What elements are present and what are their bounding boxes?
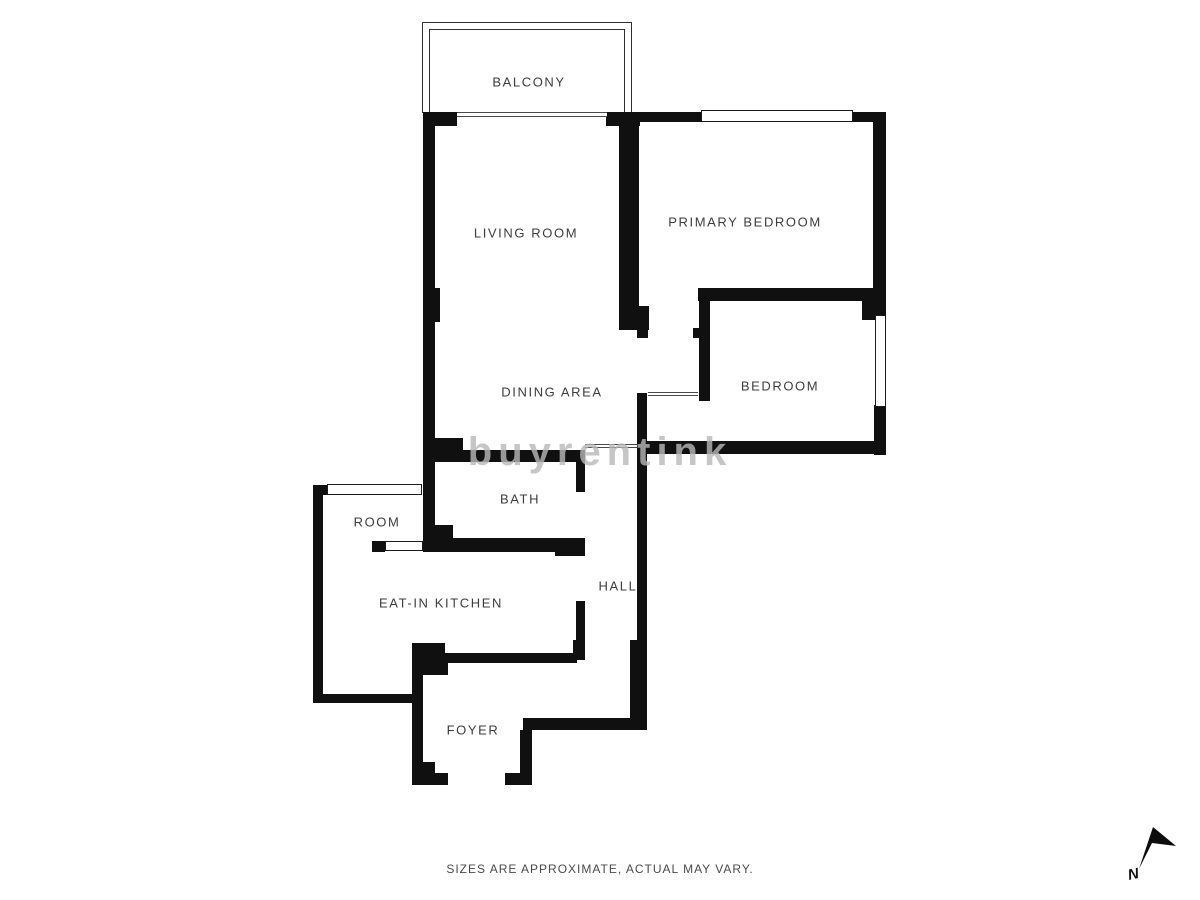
- wall-segment: [699, 288, 710, 401]
- wall-segment: [423, 288, 440, 322]
- wall-segment: [630, 640, 647, 730]
- wall-segment: [693, 328, 700, 338]
- wall-segment: [619, 112, 639, 306]
- window: [701, 110, 853, 122]
- room-label-room: ROOM: [354, 515, 401, 530]
- wall-segment: [372, 541, 385, 552]
- wall-segment: [873, 112, 886, 304]
- wall-segment: [313, 694, 419, 703]
- room-label-hall: HALL: [599, 579, 638, 594]
- watermark: buyrentink: [468, 430, 732, 475]
- wall-segment: [698, 288, 886, 301]
- wall-segment: [412, 773, 448, 785]
- wall-segment: [423, 525, 453, 552]
- wall-segment: [637, 322, 648, 338]
- wall-segment: [432, 538, 578, 552]
- door-opening-line: [457, 112, 607, 117]
- room-label-primary-bedroom: PRIMARY BEDROOM: [668, 215, 822, 230]
- wall-segment: [520, 730, 532, 785]
- door-opening-line: [648, 392, 698, 396]
- balcony-outline-inner: [429, 29, 625, 113]
- wall-segment: [423, 112, 435, 552]
- room-label-bedroom: BEDROOM: [741, 379, 819, 394]
- footer-disclaimer: SIZES ARE APPROXIMATE, ACTUAL MAY VARY.: [0, 862, 1200, 876]
- wall-segment: [523, 718, 647, 730]
- compass: N: [1124, 820, 1188, 892]
- wall-segment: [313, 485, 323, 703]
- room-label-eat-in-kitchen: EAT-IN KITCHEN: [379, 596, 503, 611]
- window: [385, 541, 423, 551]
- window: [327, 484, 422, 495]
- window: [875, 315, 886, 407]
- room-label-dining-area: DINING AREA: [501, 385, 602, 400]
- room-label-living-room: LIVING ROOM: [474, 226, 578, 241]
- room-label-balcony: BALCONY: [492, 75, 565, 90]
- floor-plan: BALCONYLIVING ROOMPRIMARY BEDROOMDINING …: [0, 0, 1200, 900]
- wall-segment: [576, 601, 585, 660]
- room-label-foyer: FOYER: [447, 723, 500, 738]
- room-label-bath: BATH: [500, 492, 540, 507]
- wall-segment: [433, 653, 577, 663]
- wall-segment: [633, 112, 701, 122]
